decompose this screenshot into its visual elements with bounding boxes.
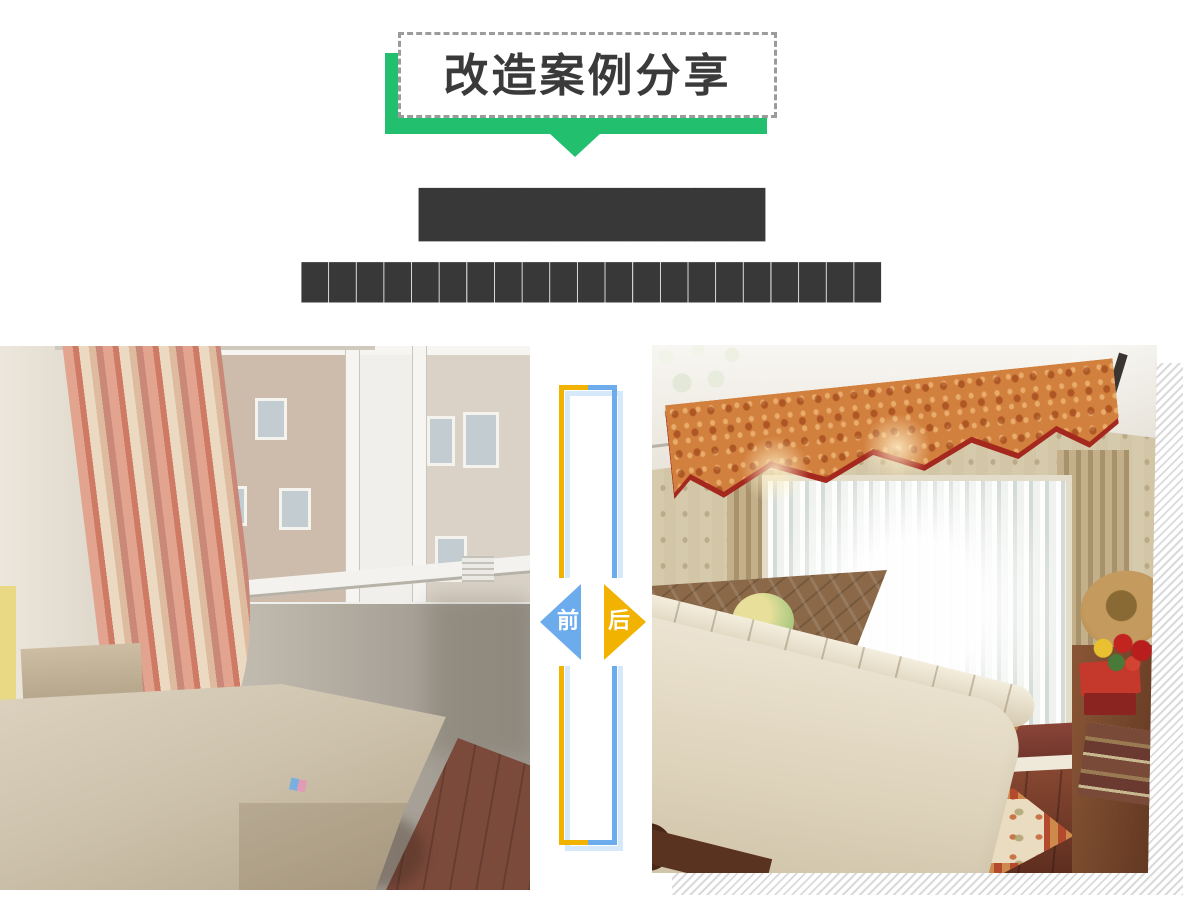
mattress-tag [289,777,307,792]
redacted-subtitle-text: █████████████████████ [0,266,1184,300]
window-frame-mullion [345,346,360,602]
banner-pointer-icon [548,132,602,157]
building-window [279,488,311,530]
redacted-title-text: ██████████ [0,192,1184,237]
wardrobe-edge [0,586,16,716]
after-photo [652,345,1157,873]
before-label: 前 [555,610,581,632]
wall-shading [428,596,530,756]
before-photo [0,346,530,890]
building-window [255,398,287,440]
wall-light-glow [860,411,934,485]
wall-vent [462,556,494,582]
promo-graphic: 改造案例分享 ██████████ █████████████████████ [0,0,1184,901]
flower-arrangement [1090,629,1156,677]
building-window [463,412,499,468]
stacked-books [1077,722,1157,806]
after-label: 后 [606,610,632,632]
building-window [427,416,455,466]
banner-title: 改造案例分享 [443,53,731,98]
dark-red-box [1084,693,1136,715]
banner-dashed-box: 改造案例分享 [398,32,777,118]
wall-light-glow [738,433,812,507]
